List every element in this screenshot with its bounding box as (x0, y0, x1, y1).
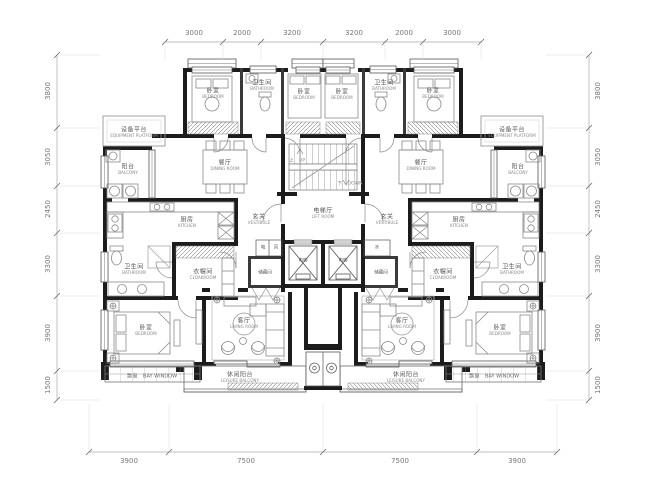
room-label-cn: 阳台 (506, 163, 530, 170)
room-label-en: DOWN (348, 181, 363, 186)
room-label-bedroom-top-right: 卧室 BEDROOM (420, 87, 446, 100)
room-label-living-right: 客厅 LIVING ROOM (385, 317, 419, 330)
room-label-kitchen-left: 厨房 KITCHEN (176, 216, 198, 229)
dim-right-4: 3900 (594, 324, 602, 342)
room-label-cn: 卫生间 (248, 79, 277, 86)
room-label-en: EQUIPMENT PLATFORM (110, 134, 157, 139)
room-label-vestibule-right: 玄关 VESTIBULE (373, 213, 400, 226)
room-label-bay-window-left: 飘窗 BAY WINDOW (127, 362, 177, 381)
dim-left-2: 2450 (44, 200, 52, 218)
room-label-en: BALCONY (118, 171, 138, 176)
room-label-en: BEDROOM (422, 95, 443, 100)
room-label-cn: 卧室 (487, 324, 513, 331)
room-label-living-left: 客厅 LIVING ROOM (227, 317, 261, 330)
room-label-equipment-platform-right: 设备平台 EQUIPMENT PLATFORM (483, 126, 541, 139)
room-label-bedroom-center-right: 卧室 BEDROOM (329, 88, 355, 101)
room-label-en: BATHROOM (250, 87, 274, 92)
room-label-bathroom-lower-left: 卫生间 BATHROOM (120, 263, 149, 276)
room-label-en: LEISURE BALCONY (387, 379, 425, 384)
room-label-balcony-left: 阳台 BALCONY (116, 163, 140, 176)
dim-left-4: 3900 (44, 324, 52, 342)
room-label-en: EQUIPMENT PLATFORM (488, 134, 535, 139)
room-label-cn: 卫生间 (498, 263, 527, 270)
dim-top-3: 3200 (345, 29, 363, 37)
room-label-cn: 玄关 (245, 213, 272, 220)
room-label-bedroom-top-left: 卧室 BEDROOM (200, 87, 226, 100)
room-label-equipment-platform-left: 设备平台 EQUIPMENT PLATFORM (105, 126, 163, 139)
room-label-en: KITCHEN (450, 224, 468, 229)
room-label-cn: 阳台 (116, 163, 140, 170)
room-label-vestibule-left: 玄关 VESTIBULE (245, 213, 272, 226)
room-label-storage-right: 储藏间 (374, 270, 388, 275)
room-label-cn: 卧室 (200, 87, 226, 94)
room-label-bedroom-center-left: 卧室 BEDROOM (291, 88, 317, 101)
floor-plan-drawing (0, 0, 646, 494)
room-label-cn: 电梯 (339, 258, 348, 263)
room-label-en: DINING ROOM (406, 167, 435, 172)
room-label-cn: 玄关 (373, 213, 400, 220)
room-label-shaft-electric: 电 (261, 245, 266, 250)
room-label-en: UP (299, 158, 305, 163)
room-label-en: BAY WINDOW (143, 373, 177, 379)
room-label-en: BEDROOM (135, 332, 156, 337)
room-label-en: LIVING ROOM (230, 325, 258, 330)
room-label-en: LIVING ROOM (388, 325, 416, 330)
dim-right-3: 3300 (594, 255, 602, 273)
room-label-en: CLOAKROOM (430, 276, 456, 281)
room-label-dining-left: 餐厅 DINING ROOM (207, 159, 242, 172)
room-label-en: BATHROOM (122, 271, 146, 276)
dim-bottom-0: 3900 (120, 457, 138, 465)
room-label-cn: 风 (274, 245, 279, 250)
room-label-cn: 卧室 (133, 324, 159, 331)
room-label-balcony-right: 阳台 BALCONY (506, 163, 530, 176)
dim-bottom-2: 7500 (391, 457, 409, 465)
room-label-en: BEDROOM (293, 96, 314, 101)
dim-right-0: 3800 (594, 82, 602, 100)
unit-right-drawing (323, 59, 545, 392)
dim-top-2: 3200 (283, 29, 301, 37)
dim-top-1: 2000 (233, 29, 251, 37)
room-label-shaft-vent: 风 (274, 245, 279, 250)
dim-top-0: 3000 (185, 29, 203, 37)
room-label-cn: 卧室 (329, 88, 355, 95)
room-label-cn: 电梯 (299, 258, 308, 263)
dim-bottom-3: 3900 (508, 457, 526, 465)
unit-left-drawing (101, 59, 323, 392)
dim-right-5: 1500 (594, 376, 602, 394)
room-label-bathroom-top-left: 卫生间 BATHROOM (248, 79, 277, 92)
room-label-en: BALCONY (508, 171, 528, 176)
room-label-cn: 厨房 (176, 216, 198, 223)
room-label-cn: 休闲阳台 (383, 371, 429, 378)
room-label-bedroom-master-left: 卧室 BEDROOM (133, 324, 159, 337)
room-label-kitchen-right: 厨房 KITCHEN (448, 216, 470, 229)
room-label-en: BEDROOM (331, 96, 352, 101)
room-label-en: BATHROOM (372, 87, 396, 92)
room-label-cn: 下 (338, 181, 343, 186)
floor-plan-canvas: 设备平台 EQUIPMENT PLATFORM 设备平台 EQUIPMENT P… (0, 0, 646, 494)
room-label-en: DINING ROOM (210, 167, 239, 172)
room-label-cloakroom-right: 衣帽间 CLOAKROOM (427, 268, 459, 281)
room-label-en: VESTIBULE (376, 221, 398, 226)
room-label-en: BATHROOM (500, 271, 524, 276)
room-label-cn: 衣帽间 (427, 268, 459, 275)
room-label-cn: 餐厅 (403, 159, 438, 166)
room-label-bathroom-top-right: 卫生间 BATHROOM (370, 79, 399, 92)
room-label-cn: 休闲阳台 (217, 371, 263, 378)
dim-right-2: 2450 (594, 200, 602, 218)
dim-top-4: 2000 (395, 29, 413, 37)
room-label-cn: 卫生间 (370, 79, 399, 86)
room-label-cn: 餐厅 (207, 159, 242, 166)
stairs-up-label: 上 UP (289, 146, 305, 165)
dim-left-5: 1500 (44, 376, 52, 394)
dim-left-1: 3050 (44, 148, 52, 166)
room-label-lift-room: 电梯厅 LIFT ROOM (309, 207, 336, 220)
room-label-elevator-left: 电梯 (299, 258, 308, 263)
room-label-en: KITCHEN (178, 224, 196, 229)
dim-top-5: 3000 (443, 29, 461, 37)
room-label-cn: 设备平台 (105, 126, 163, 133)
room-label-cn: 储藏间 (374, 270, 388, 275)
dim-left-0: 3800 (44, 82, 52, 100)
room-label-leisure-balcony-left: 休闲阳台 LEISURE BALCONY (217, 371, 263, 384)
room-label-cn: 卫生间 (120, 263, 149, 270)
room-label-en: LIFT ROOM (312, 215, 334, 220)
room-label-dining-right: 餐厅 DINING ROOM (403, 159, 438, 172)
room-label-cn: 储藏间 (258, 270, 272, 275)
stairs-down-label: 下 DOWN (338, 169, 363, 188)
room-label-leisure-balcony-right: 休闲阳台 LEISURE BALCONY (383, 371, 429, 384)
dim-right-1: 3050 (594, 148, 602, 166)
room-label-shaft-water: 水 (375, 245, 380, 250)
room-label-storage-left: 储藏间 (258, 270, 272, 275)
room-label-cn: 厨房 (448, 216, 470, 223)
dim-left-3: 3300 (44, 255, 52, 273)
room-label-en: LEISURE BALCONY (221, 379, 259, 384)
room-label-en: BEDROOM (202, 95, 223, 100)
room-label-bedroom-master-right: 卧室 BEDROOM (487, 324, 513, 337)
room-label-cn: 电梯厅 (309, 207, 336, 214)
room-label-cn: 卧室 (420, 87, 446, 94)
room-label-elevator-right: 电梯 (339, 258, 348, 263)
room-label-cloakroom-left: 衣帽间 CLOAKROOM (187, 268, 219, 281)
room-label-cn: 飘窗 (127, 373, 138, 379)
room-label-cn: 设备平台 (483, 126, 541, 133)
room-label-cn: 飘窗 (469, 373, 480, 379)
room-label-cn: 水 (375, 245, 380, 250)
room-label-cn: 上 (289, 158, 294, 163)
room-label-cn: 卧室 (291, 88, 317, 95)
room-label-en: VESTIBULE (248, 221, 270, 226)
room-label-cn: 衣帽间 (187, 268, 219, 275)
room-label-cn: 电 (261, 245, 266, 250)
room-label-cn: 客厅 (227, 317, 261, 324)
room-label-cn: 客厅 (385, 317, 419, 324)
room-label-en: CLOAKROOM (190, 276, 216, 281)
dim-bottom-1: 7500 (237, 457, 255, 465)
room-label-en: BAY WINDOW (485, 373, 519, 379)
room-label-bay-window-right: 飘窗 BAY WINDOW (469, 362, 519, 381)
room-label-en: BEDROOM (489, 332, 510, 337)
room-label-bathroom-lower-right: 卫生间 BATHROOM (498, 263, 527, 276)
core-drawing (248, 134, 398, 390)
